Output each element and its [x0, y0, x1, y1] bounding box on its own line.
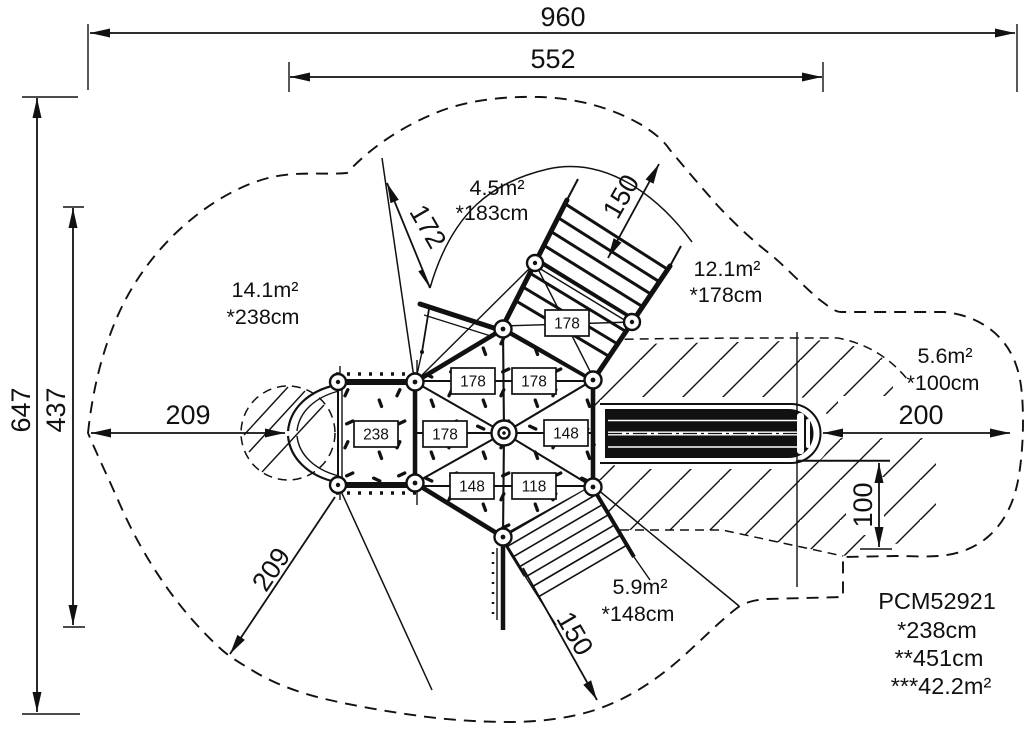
dim-inner-depth-label: 437 — [41, 387, 71, 432]
dim-overall-depth-label: 647 — [6, 387, 36, 432]
zone-top-area: 4.5m² — [470, 176, 525, 200]
center-hub — [492, 421, 517, 446]
height-box-label-platform: 238 — [363, 427, 389, 444]
height-box-label-right: 148 — [553, 426, 579, 443]
zone-bottom-label: 5.9m² *148cm — [602, 575, 675, 626]
dim-slide-side-label: 100 — [848, 482, 878, 527]
height-box-label-lower-right: 118 — [522, 479, 547, 496]
technical-drawing-page: 960 552 647 437 209 200 100 172 150 150 … — [0, 0, 1024, 733]
zone-top-height: *183cm — [456, 201, 529, 225]
entrance-rails — [288, 385, 339, 482]
entrance-hatch-lines — [244, 387, 324, 472]
dim-upper-left-zone-label: 172 — [404, 199, 453, 253]
zone-right-area: 5.6m² — [918, 344, 973, 368]
dim-upper-right-zone-label: 150 — [597, 169, 646, 223]
zone-top-label: 4.5m² *183cm — [456, 176, 529, 225]
dim-right-clearance-label: 200 — [898, 400, 943, 430]
zone-left-area: 14.1m² — [232, 278, 299, 302]
zone-top-right-area: 12.1m² — [694, 257, 761, 281]
zone-top-right-label: 12.1m² *178cm — [690, 257, 763, 307]
zone-bottom-area: 5.9m² — [613, 575, 668, 599]
dim-inner-width-label: 552 — [530, 44, 575, 74]
dim-lower-zone-label: 150 — [551, 606, 600, 660]
product-info-block: PCM52921 *238cm **451cm ***42.2m² — [878, 588, 996, 699]
product-code: PCM52921 — [878, 588, 996, 614]
zone-left-height: *238cm — [227, 305, 300, 329]
support-pole — [493, 545, 503, 630]
playground-plan-drawing: 960 552 647 437 209 200 100 172 150 150 … — [0, 0, 1024, 733]
height-box-label-top: 178 — [554, 316, 580, 333]
dim-overall-width-label: 960 — [540, 2, 585, 32]
height-box-label-upper-right: 178 — [521, 374, 547, 391]
zone-left-label: 14.1m² *238cm — [227, 278, 300, 329]
info-line-3: **451cm — [895, 645, 984, 671]
dim-diagonal-clearance-label: 209 — [246, 542, 296, 596]
height-box-label-center: 178 — [432, 427, 458, 444]
slide — [600, 404, 821, 463]
zone-right-height: *100cm — [907, 371, 980, 395]
zone-bottom-height: *148cm — [602, 602, 675, 626]
info-line-2: *238cm — [897, 617, 977, 643]
height-box-label-lower-left: 148 — [459, 479, 485, 496]
zone-top-right-height: *178cm — [690, 283, 763, 307]
dim-left-clearance-label: 209 — [165, 400, 210, 430]
height-box-label-upper-left: 178 — [460, 374, 486, 391]
info-line-4: ***42.2m² — [891, 673, 992, 699]
